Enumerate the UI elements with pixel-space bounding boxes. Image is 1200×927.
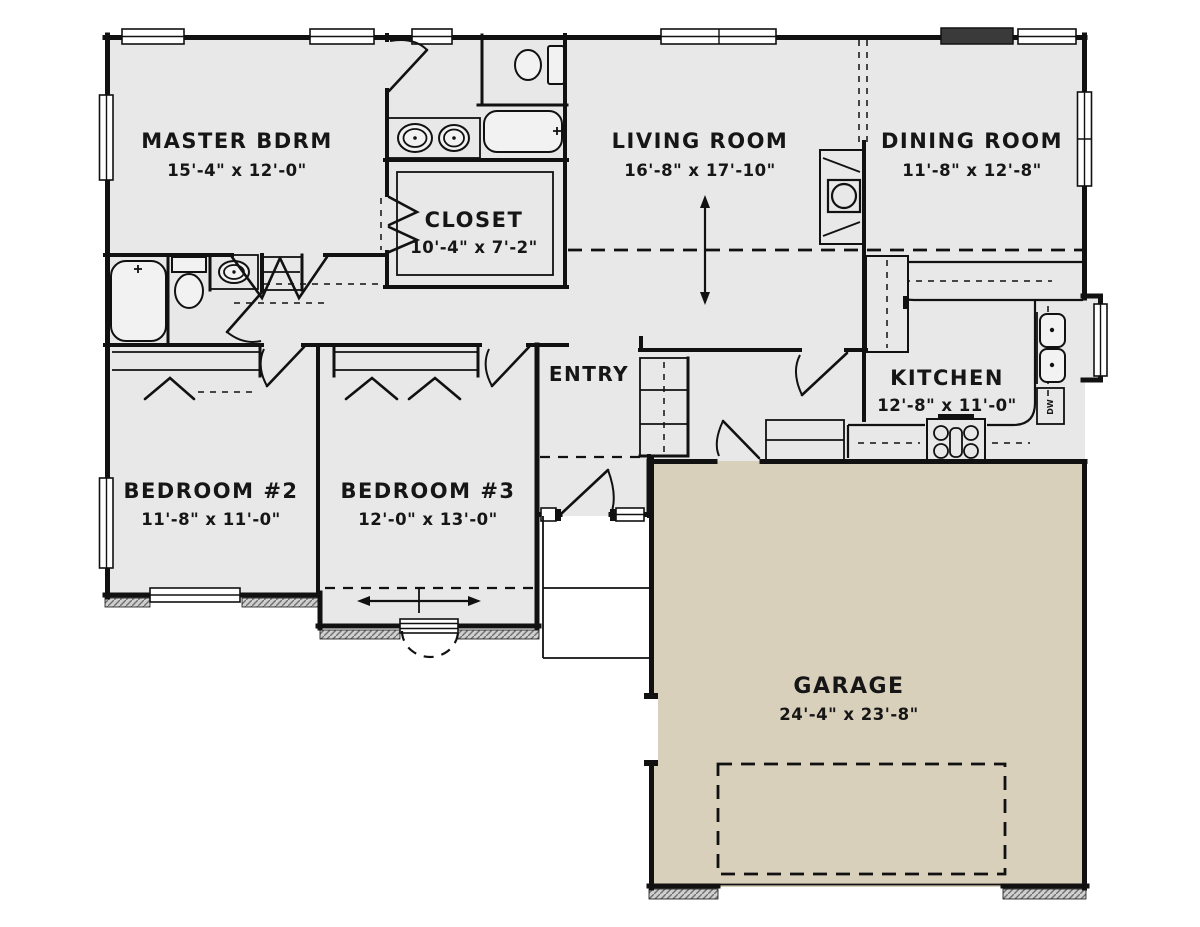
- garage-label: GARAGE: [793, 674, 904, 699]
- dishwasher-label: DW: [1046, 399, 1055, 415]
- window-dark: [941, 28, 1013, 44]
- bedroom2-label: BEDROOM #2: [123, 479, 298, 503]
- kitchen-dims: 12'-8" x 11'-0": [877, 396, 1017, 415]
- living-room-dims: 16'-8" x 17'-10": [624, 161, 776, 180]
- living-room-label: LIVING ROOM: [612, 129, 789, 153]
- fireplace: [820, 150, 864, 244]
- sliding-window: [400, 619, 458, 633]
- garage-service-door-opening: [645, 697, 658, 760]
- closet-dims: 10'-4" x 7'-2": [410, 238, 538, 257]
- toilet-tank: [172, 257, 206, 272]
- dining-room-label: DINING ROOM: [881, 129, 1063, 153]
- bedroom2-dims: 11'-8" x 11'-0": [141, 510, 281, 529]
- floorplan-svg: DW: [0, 0, 1200, 927]
- floorplan-canvas: DW: [0, 0, 1200, 927]
- closet-label: CLOSET: [425, 208, 524, 232]
- bedroom3-label: BEDROOM #3: [340, 479, 515, 503]
- garage-dims: 24'-4" x 23'-8": [779, 705, 919, 724]
- stoop-arc: [402, 631, 458, 657]
- master-bedroom-label: MASTER BDRM: [141, 129, 332, 153]
- master-bedroom-dims: 15'-4" x 12'-0": [167, 161, 307, 180]
- kitchen-label: KITCHEN: [890, 366, 1004, 390]
- toilet-bowl-icon: [515, 50, 541, 80]
- entry-label: ENTRY: [549, 362, 629, 386]
- bedroom3-dims: 12'-0" x 13'-0": [358, 510, 498, 529]
- toilet-tank: [548, 46, 564, 84]
- dining-room-dims: 11'-8" x 12'-8": [902, 161, 1042, 180]
- bathtub-icon: [484, 111, 562, 152]
- toilet-bowl-icon: [175, 274, 203, 308]
